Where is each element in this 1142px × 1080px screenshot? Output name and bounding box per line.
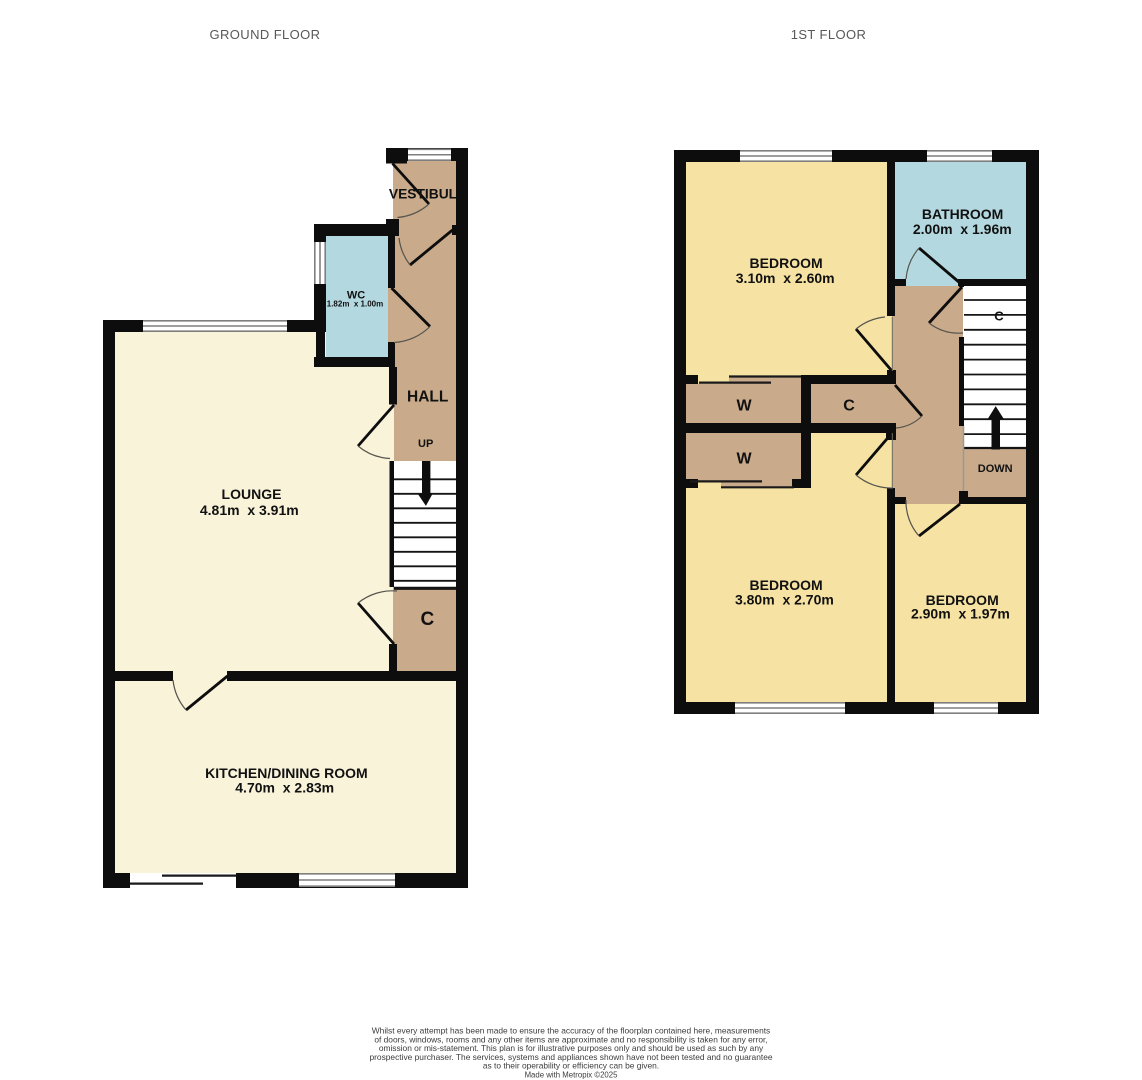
svg-text:DOWN: DOWN (978, 463, 1013, 475)
svg-text:VESTIBULE: VESTIBULE (389, 186, 466, 201)
svg-text:GROUND FLOOR: GROUND FLOOR (210, 27, 321, 42)
svg-text:4.81m x 3.91m: 4.81m x 3.91m (200, 502, 299, 518)
svg-text:1.82m x 1.00m: 1.82m x 1.00m (327, 300, 383, 309)
svg-text:UP: UP (418, 438, 433, 450)
svg-text:W: W (736, 451, 752, 468)
svg-text:3.80m x 2.70m: 3.80m x 2.70m (735, 592, 834, 608)
svg-text:2.00m x 1.96m: 2.00m x 1.96m (913, 221, 1012, 237)
svg-text:Made with Metropix ©2025: Made with Metropix ©2025 (525, 1071, 619, 1080)
svg-text:3.10m x 2.60m: 3.10m x 2.60m (736, 270, 835, 286)
svg-text:W: W (736, 398, 752, 415)
svg-text:1ST FLOOR: 1ST FLOOR (791, 27, 867, 42)
svg-text:C: C (421, 609, 435, 630)
svg-text:C: C (843, 398, 855, 415)
svg-text:BEDROOM: BEDROOM (750, 577, 823, 593)
svg-text:C: C (994, 309, 1004, 324)
svg-text:4.70m x 2.83m: 4.70m x 2.83m (235, 780, 334, 796)
svg-text:2.90m x 1.97m: 2.90m x 1.97m (911, 606, 1010, 622)
svg-text:BEDROOM: BEDROOM (750, 255, 823, 271)
svg-text:KITCHEN/DINING ROOM: KITCHEN/DINING ROOM (205, 765, 368, 781)
svg-text:BATHROOM: BATHROOM (922, 206, 1003, 222)
svg-text:LOUNGE: LOUNGE (222, 486, 282, 502)
svg-text:as to their operability or eff: as to their operability or efficiency ca… (483, 1061, 659, 1071)
svg-text:HALL: HALL (407, 389, 448, 406)
